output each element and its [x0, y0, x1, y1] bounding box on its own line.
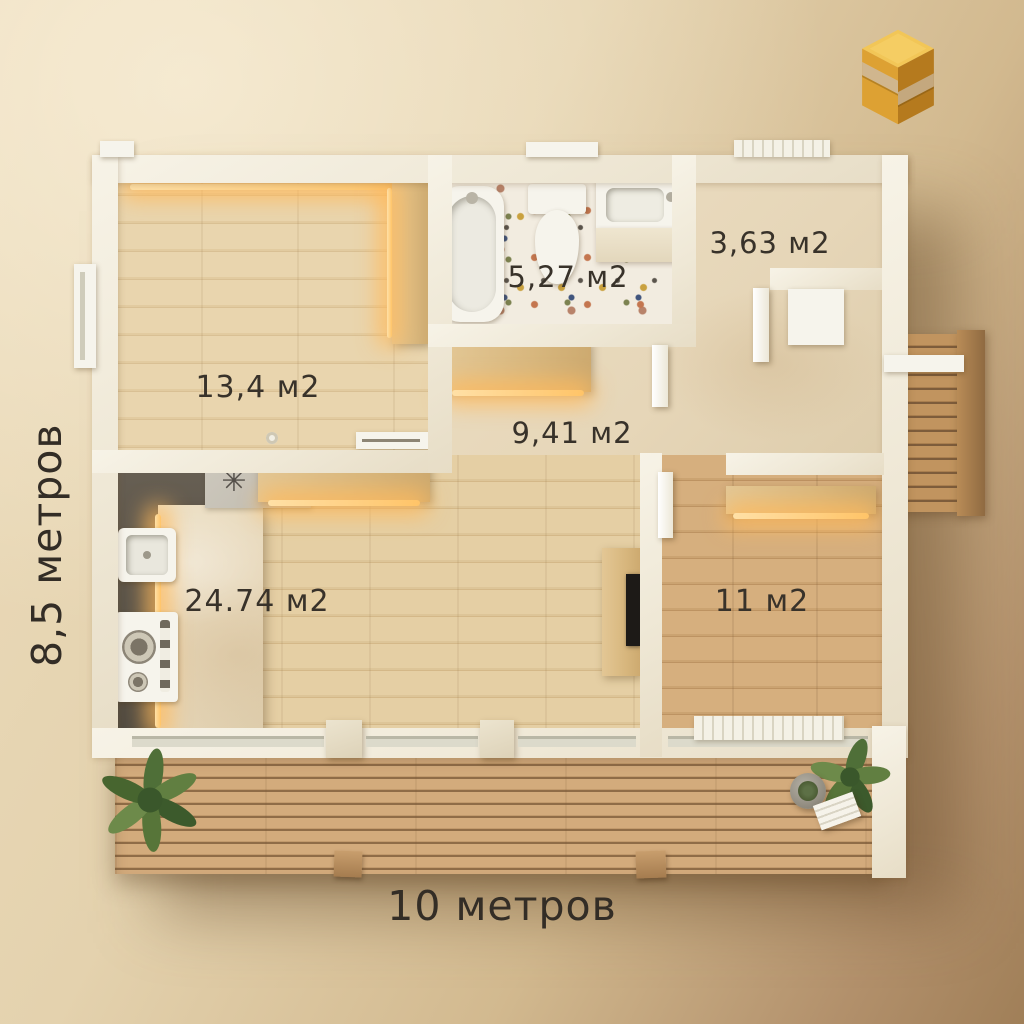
bedroom-shelf [726, 486, 876, 514]
window-left-icon [74, 264, 96, 368]
kitchen-sink-drain [143, 551, 151, 559]
wall-entry-partition [770, 268, 882, 290]
entry-cabinet [788, 289, 844, 345]
glass-door-panel [518, 736, 636, 747]
floor-plan-render: ✳ [0, 0, 1024, 1024]
terrace-deck [115, 753, 885, 874]
area-label-entry: 3,63 м2 [670, 226, 870, 260]
wardrobe-led-strip [387, 188, 392, 338]
glass-door-post [326, 720, 362, 758]
wall-top [92, 155, 908, 183]
terrace-step [334, 851, 363, 878]
room-top-left-floor [105, 168, 435, 464]
area-label-hallway: 9,41 м2 [472, 416, 672, 450]
radiator-entry-top-icon [734, 140, 830, 157]
wall-bedroom-top [726, 453, 884, 475]
stove-burner-small [128, 672, 148, 692]
wall-roomA-bathroom [428, 155, 452, 473]
bedroom-door-icon [658, 472, 673, 538]
glass-door-panel [132, 736, 324, 747]
hall-sideboard [443, 340, 591, 392]
floor-outlet [266, 432, 278, 444]
terrace-step [636, 850, 667, 878]
bedroom-shelf-led [733, 513, 869, 519]
desk-line [362, 439, 420, 442]
stove-knobs [160, 620, 170, 692]
dimension-width-label: 10 метров [382, 882, 622, 930]
room-top-left-led-strip [130, 184, 420, 190]
wall-right [882, 155, 908, 757]
living-sideboard-led [268, 500, 420, 506]
window-bathroom-top [526, 142, 598, 157]
glass-door-panel [366, 736, 478, 747]
hall-sideboard-led [452, 390, 584, 396]
succulent-top [798, 781, 818, 801]
bathtub-basin [448, 196, 496, 312]
wall-roomA-bottom [92, 450, 428, 473]
sink-icon [606, 188, 664, 222]
area-label-bedroom: 11 м2 [662, 584, 862, 619]
stove-burner-large [122, 630, 156, 664]
bathtub-faucet [466, 192, 478, 204]
wall-bathroom-bottom [428, 324, 696, 347]
glass-door-post [480, 720, 514, 758]
logo-icon [850, 26, 946, 128]
area-label-bathroom: 5,27 м2 [468, 260, 668, 294]
wall-tab-top-left [100, 141, 134, 157]
area-label-room-top-left: 13,4 м2 [158, 370, 358, 405]
entry-door-icon [753, 288, 769, 362]
tv-icon [626, 574, 640, 646]
plant-icon [98, 748, 202, 852]
window-left-glass [80, 272, 85, 360]
porch-threshold [884, 355, 964, 372]
area-label-living-kitchen: 24.74 м2 [157, 584, 357, 619]
bathroom-door-icon [652, 345, 668, 407]
dimension-height-label: 8,5 метров [23, 437, 71, 667]
room-top-left-wardrobe [392, 182, 430, 344]
